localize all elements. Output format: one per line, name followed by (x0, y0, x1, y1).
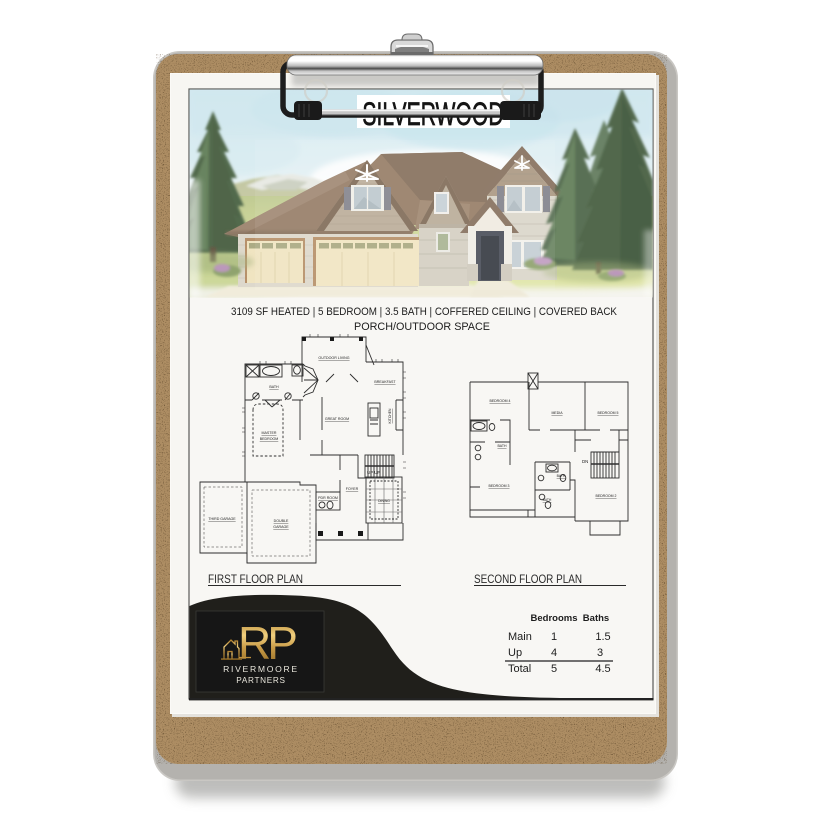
svg-text:FIRST FLOOR PLAN: FIRST FLOOR PLAN (208, 574, 303, 586)
svg-text:THIRD GARAGE: THIRD GARAGE (208, 517, 236, 521)
svg-text:BATH: BATH (497, 444, 507, 448)
svg-text:1.5: 1.5 (595, 631, 610, 643)
svg-text:PORCH/OUTDOOR SPACE: PORCH/OUTDOOR SPACE (354, 321, 490, 333)
svg-text:BATH: BATH (543, 498, 552, 502)
svg-text:GARAGE: GARAGE (273, 525, 289, 529)
svg-text:BREAKFAST: BREAKFAST (374, 380, 396, 384)
svg-text:BEDROOM 3: BEDROOM 3 (488, 484, 509, 488)
svg-text:DINING: DINING (378, 499, 390, 503)
svg-text:BATH: BATH (269, 385, 279, 389)
svg-text:Main: Main (508, 631, 532, 643)
svg-text:3109 SF HEATED | 5 BEDROOM | 3: 3109 SF HEATED | 5 BEDROOM | 3.5 BATH | … (231, 306, 618, 318)
svg-text:BEDROOM: BEDROOM (260, 437, 279, 441)
svg-text:RP: RP (238, 617, 296, 669)
svg-text:PDR ROOM: PDR ROOM (318, 496, 338, 500)
svg-text:KITCHEN: KITCHEN (388, 408, 392, 423)
svg-text:DOUBLE: DOUBLE (274, 519, 289, 523)
svg-text:3: 3 (597, 647, 603, 659)
svg-text:MEDIA: MEDIA (551, 411, 563, 415)
svg-text:Up: Up (508, 647, 522, 659)
svg-text:DN: DN (582, 459, 588, 464)
svg-text:Baths: Baths (583, 613, 609, 624)
svg-text:GREAT ROOM: GREAT ROOM (325, 417, 349, 421)
svg-text:4.5: 4.5 (595, 663, 610, 675)
svg-text:BEDROOM 2: BEDROOM 2 (595, 494, 616, 498)
svg-text:SECOND FLOOR PLAN: SECOND FLOOR PLAN (474, 574, 582, 586)
svg-text:BEDROOM 5: BEDROOM 5 (597, 411, 618, 415)
svg-text:Bedrooms: Bedrooms (531, 613, 578, 624)
svg-text:1: 1 (551, 631, 557, 643)
svg-text:RIVERMOORE: RIVERMOORE (223, 664, 299, 674)
svg-text:OUTDOOR LIVING: OUTDOOR LIVING (318, 356, 349, 360)
svg-text:FOYER: FOYER (346, 487, 359, 491)
svg-text:BEDROOM 4: BEDROOM 4 (489, 399, 510, 403)
svg-text:PARTNERS: PARTNERS (236, 676, 285, 685)
svg-text:4: 4 (551, 647, 557, 659)
svg-text:BATH: BATH (557, 474, 566, 478)
svg-text:UP UP: UP UP (367, 470, 380, 475)
svg-text:5: 5 (551, 663, 557, 675)
svg-text:Total: Total (508, 663, 531, 675)
svg-text:MASTER: MASTER (262, 431, 277, 435)
